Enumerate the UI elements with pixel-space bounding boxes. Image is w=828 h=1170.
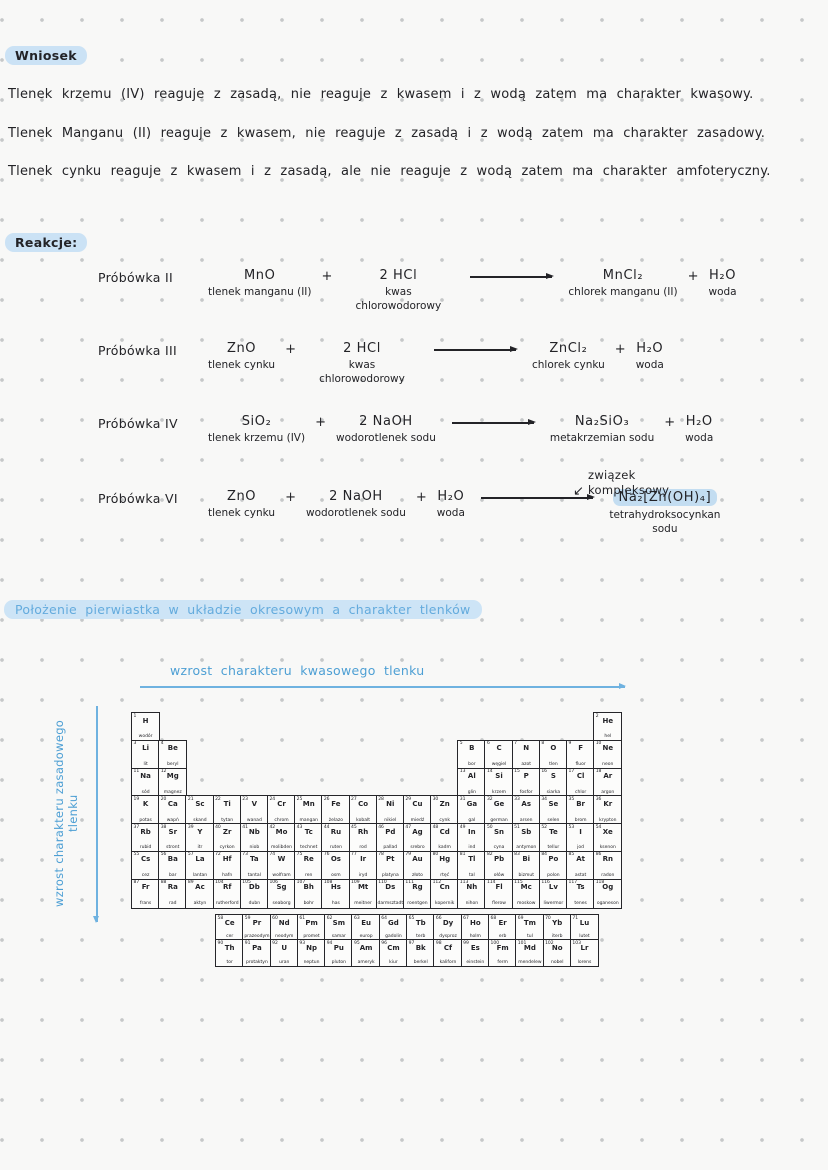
element-symbol: Rb <box>132 828 159 836</box>
element-B: 5Bbor <box>458 741 485 769</box>
element-symbol: Al <box>458 772 485 780</box>
element-Zr: 40Zrcyrkon <box>214 824 241 852</box>
reaction-term: ZnOtlenek cynku <box>208 489 275 521</box>
element-name: cez <box>132 873 159 878</box>
element-Cn: 112Cnkopernik <box>431 880 458 908</box>
element-name: nobel <box>544 960 571 965</box>
element-symbol: Rg <box>404 883 431 891</box>
element-I: 53Ijod <box>567 824 594 852</box>
element-symbol: Pt <box>377 855 404 863</box>
element-Og: 118Ogoganeson <box>594 880 621 908</box>
reaction-arrow <box>452 422 534 424</box>
element-symbol: Tm <box>516 919 543 927</box>
element-name: neon <box>594 762 621 767</box>
element-name: iryd <box>350 873 377 878</box>
element-name: azot <box>513 762 540 767</box>
equation: MnOtlenek manganu (II)+2 HClkwas chlorow… <box>202 268 743 313</box>
element-symbol: Ra <box>159 883 186 891</box>
element-Tl: 81Tltal <box>458 852 485 880</box>
acid-character-arrow-label: wzrost charakteru kwasowego tlenku <box>170 663 425 678</box>
element-Th: 90Thtor <box>216 940 243 966</box>
element-symbol: Rn <box>594 855 621 863</box>
element-name: hafn <box>214 873 241 878</box>
element-name: has <box>322 901 349 906</box>
element-symbol: Sg <box>268 883 295 891</box>
element-Eu: 63Eueurop <box>352 915 379 940</box>
element-name: wodór <box>132 734 159 739</box>
element-Lu: 71Lulutet <box>571 915 598 940</box>
element-symbol: Tb <box>407 919 434 927</box>
element-He: 2Hehel <box>594 713 621 741</box>
element-name: terb <box>407 934 434 939</box>
element-symbol: O <box>540 744 567 752</box>
element-name: mendelew <box>516 960 543 965</box>
element-symbol: Xe <box>594 828 621 836</box>
element-symbol: K <box>132 800 159 808</box>
element-Mt: 109Mtmeitner <box>350 880 377 908</box>
element-Po: 84Popolon <box>540 852 567 880</box>
element-name: cer <box>216 934 243 939</box>
element-Rn: 86Rnradon <box>594 852 621 880</box>
reaction-term: 2 NaOHwodorotlenek sodu <box>336 414 436 446</box>
element-name: żelazo <box>322 818 349 823</box>
element-symbol: Gd <box>380 919 407 927</box>
element-Np: 93Npneptun <box>298 940 325 966</box>
element-symbol: La <box>186 855 213 863</box>
element-Cl: 17Clchlor <box>567 769 594 797</box>
equation: ZnOtlenek cynku+2 HClkwas chlorowodorowy… <box>202 341 670 386</box>
element-symbol: Cu <box>404 800 431 808</box>
lanthanide-actinide-block: 58Cecer59Prprazeodym60Ndneodym61Pmpromet… <box>216 915 598 966</box>
element-Xe: 54Xeksenon <box>594 824 621 852</box>
element-Si: 14Sikrzem <box>485 769 512 797</box>
element-name: radon <box>594 873 621 878</box>
element-name: cynk <box>431 818 458 823</box>
element-name: tul <box>516 934 543 939</box>
element-Zn: 30Zncynk <box>431 796 458 824</box>
element-Hs: 108Hshas <box>322 880 349 908</box>
complex-note-arrow-icon: ↙ <box>573 484 584 499</box>
formula-label: wodorotlenek sodu <box>306 507 406 521</box>
element-La: 57Lalantan <box>186 852 213 880</box>
element-name: tellur <box>540 845 567 850</box>
chemical-formula: ZnO <box>227 341 256 356</box>
element-Fr: 87Frfrans <box>132 880 159 908</box>
element-symbol: Lr <box>571 944 598 952</box>
test-tube-label: Próbówka VI <box>98 491 202 506</box>
element-In: 49Inind <box>458 824 485 852</box>
element-name: neodym <box>271 934 298 939</box>
conclusion-line-1: Tlenek krzemu (IV) reaguje z zasadą, nie… <box>8 87 802 102</box>
element-name: glin <box>458 790 485 795</box>
element-As: 33Asarsen <box>513 796 540 824</box>
element-symbol: Lu <box>571 919 598 927</box>
element-name: protaktyn <box>243 960 270 965</box>
element-name: europ <box>352 934 379 939</box>
element-Be: 4Beberyl <box>159 741 186 769</box>
formula-label: tlenek cynku <box>208 359 275 373</box>
element-name: wolfram <box>268 873 295 878</box>
element-name: ksenon <box>594 845 621 850</box>
element-name: darmsztadt <box>377 901 404 906</box>
element-symbol: Te <box>540 828 567 836</box>
element-Nh: 113Nhnihon <box>458 880 485 908</box>
element-Yb: 70Ybiterb <box>544 915 571 940</box>
element-symbol: Zn <box>431 800 458 808</box>
chemical-formula: 2 HCl <box>379 268 417 283</box>
element-name: rubid <box>132 845 159 850</box>
chemical-formula: ZnO <box>227 489 256 504</box>
element-symbol: Cn <box>431 883 458 891</box>
element-symbol: Er <box>489 919 516 927</box>
element-Ho: 67Hoholm <box>462 915 489 940</box>
element-symbol: Ba <box>159 855 186 863</box>
element-symbol: Rf <box>214 883 241 891</box>
element-Cu: 29Cumiedź <box>404 796 431 824</box>
element-symbol: Ar <box>594 772 621 780</box>
element-symbol: Na <box>132 772 159 780</box>
element-symbol: Nd <box>271 919 298 927</box>
element-Cf: 98Cfkaliforn <box>434 940 461 966</box>
element-name: chlor <box>567 790 594 795</box>
formula-label: woda <box>685 432 713 446</box>
element-symbol: Es <box>462 944 489 952</box>
element-Fm: 100Fmferm <box>489 940 516 966</box>
element-symbol: Se <box>540 800 567 808</box>
element-symbol: Ds <box>377 883 404 891</box>
reaction-term: Na₂SiO₃metakrzemian sodu <box>550 414 654 446</box>
conclusion-line-2: Tlenek Manganu (II) reaguje z kwasem, ni… <box>8 126 802 141</box>
element-name: holm <box>462 934 489 939</box>
element-name: flerow <box>485 901 512 906</box>
element-symbol: Ni <box>377 800 404 808</box>
element-name: osm <box>322 873 349 878</box>
reaction-1: Próbówka IIMnOtlenek manganu (II)+2 HClk… <box>98 268 743 313</box>
element-Cr: 24Crchrom <box>268 796 295 824</box>
element-Co: 27Cokobalt <box>350 796 377 824</box>
element-name: fluor <box>567 762 594 767</box>
element-Li: 3Lilit <box>132 741 159 769</box>
element-Nb: 41Nbniob <box>241 824 268 852</box>
chemical-formula: H₂O <box>636 341 663 356</box>
element-name: tytan <box>214 818 241 823</box>
element-Rg: 111Rgroentgen <box>404 880 431 908</box>
element-name: gal <box>458 818 485 823</box>
element-Y: 39Yitr <box>186 824 213 852</box>
element-name: dysproz <box>434 934 461 939</box>
element-name: kadm <box>431 845 458 850</box>
element-name: rtęć <box>431 873 458 878</box>
reaction-arrow <box>470 276 552 278</box>
complex-note-line1: związek <box>588 468 636 482</box>
element-name: ameryk <box>352 960 379 965</box>
reaction-2: Próbówka IIIZnOtlenek cynku+2 HClkwas ch… <box>98 341 670 386</box>
element-symbol: Pr <box>243 919 270 927</box>
element-symbol: Ir <box>350 855 377 863</box>
element-O: 8Otlen <box>540 741 567 769</box>
chemical-formula: Na₂SiO₃ <box>575 414 629 429</box>
chemical-formula: SiO₂ <box>242 414 272 429</box>
element-symbol: Bi <box>513 855 540 863</box>
acid-character-arrow <box>140 686 625 688</box>
element-symbol: Ca <box>159 800 186 808</box>
element-symbol: Cd <box>431 828 458 836</box>
element-symbol: Sc <box>186 800 213 808</box>
element-symbol: W <box>268 855 295 863</box>
element-symbol: Rh <box>350 828 377 836</box>
element-name: fosfor <box>513 790 540 795</box>
element-name: kaliforn <box>434 960 461 965</box>
element-Ce: 58Cecer <box>216 915 243 940</box>
element-Pa: 91Paprotaktyn <box>243 940 270 966</box>
element-At: 85Atastat <box>567 852 594 880</box>
element-Hg: 80Hgrtęć <box>431 852 458 880</box>
element-Lv: 116Lvliwermor <box>540 880 567 908</box>
element-symbol: Kr <box>594 800 621 808</box>
element-name: rutherford <box>214 901 241 906</box>
element-name: sód <box>132 790 159 795</box>
element-name: krypton <box>594 818 621 823</box>
element-symbol: Sn <box>485 828 512 836</box>
element-symbol: Fm <box>489 944 516 952</box>
element-Lr: 103Lrlorens <box>571 940 598 966</box>
element-name: samar <box>325 934 352 939</box>
element-symbol: U <box>271 944 298 952</box>
element-Ar: 18Arargon <box>594 769 621 797</box>
element-symbol: Y <box>186 828 213 836</box>
element-Fe: 26Feżelazo <box>322 796 349 824</box>
element-name: berkel <box>407 960 434 965</box>
element-symbol: Mn <box>295 800 322 808</box>
element-name: skand <box>186 818 213 823</box>
element-symbol: Hf <box>214 855 241 863</box>
element-symbol: F <box>567 744 594 752</box>
element-Bi: 83Bibizmut <box>513 852 540 880</box>
element-name: bar <box>159 873 186 878</box>
element-symbol: Ge <box>485 800 512 808</box>
element-symbol: Db <box>241 883 268 891</box>
formula-label: tetrahydroksocynkan sodu <box>609 509 721 536</box>
formula-label: wodorotlenek sodu <box>336 432 436 446</box>
element-Se: 34Seselen <box>540 796 567 824</box>
element-symbol: Po <box>540 855 567 863</box>
element-symbol: Fl <box>485 883 512 891</box>
element-symbol: Cr <box>268 800 295 808</box>
element-Os: 76Ososm <box>322 852 349 880</box>
element-symbol: Cs <box>132 855 159 863</box>
element-name: węgiel <box>485 762 512 767</box>
element-name: bohr <box>295 901 322 906</box>
element-Ca: 20Cawapń <box>159 796 186 824</box>
element-name: tal <box>458 873 485 878</box>
element-symbol: P <box>513 772 540 780</box>
element-name: molibden <box>268 845 295 850</box>
element-symbol: Ta <box>241 855 268 863</box>
element-name: ruten <box>322 845 349 850</box>
element-name: einstein <box>462 960 489 965</box>
element-name: kiur <box>380 960 407 965</box>
reaction-arrow <box>434 349 516 351</box>
formula-label: metakrzemian sodu <box>550 432 654 446</box>
element-Ne: 10Neneon <box>594 741 621 769</box>
element-symbol: Fr <box>132 883 159 891</box>
complex-compound-note: związek kompleksowy <box>588 468 669 498</box>
formula-label: woda <box>437 507 465 521</box>
element-name: technet <box>295 845 322 850</box>
element-Md: 101Mdmendelew <box>516 940 543 966</box>
element-Es: 99Eseinstein <box>462 940 489 966</box>
plus-sign: + <box>285 341 296 357</box>
element-name: lorens <box>571 960 598 965</box>
element-symbol: Am <box>352 944 379 952</box>
element-name: srebro <box>404 845 431 850</box>
element-name: aktyn <box>186 901 213 906</box>
element-symbol: Eu <box>352 919 379 927</box>
element-symbol: V <box>241 800 268 808</box>
element-Na: 11Nasód <box>132 769 159 797</box>
reaction-term: 2 NaOHwodorotlenek sodu <box>306 489 406 521</box>
element-Tb: 65Tbterb <box>407 915 434 940</box>
reaction-term: H₂Owoda <box>685 414 713 446</box>
element-Mo: 42Momolibden <box>268 824 295 852</box>
reaction-term: MnCl₂chlorek manganu (II) <box>568 268 677 300</box>
element-symbol: Dy <box>434 919 461 927</box>
element-name: oganeson <box>594 901 621 906</box>
element-Cs: 55Cscez <box>132 852 159 880</box>
element-Sc: 21Scskand <box>186 796 213 824</box>
element-symbol: He <box>594 717 621 725</box>
element-symbol: Co <box>350 800 377 808</box>
element-symbol: In <box>458 828 485 836</box>
element-name: iterb <box>544 934 571 939</box>
element-symbol: Bh <box>295 883 322 891</box>
element-symbol: Np <box>298 944 325 952</box>
element-name: polon <box>540 873 567 878</box>
element-symbol: I <box>567 828 594 836</box>
element-Bk: 97Bkberkel <box>407 940 434 966</box>
element-Ts: 117Tstenes <box>567 880 594 908</box>
element-symbol: Ru <box>322 828 349 836</box>
element-name: stront <box>159 845 186 850</box>
element-symbol: Pm <box>298 919 325 927</box>
element-symbol: Re <box>295 855 322 863</box>
element-Pb: 82Pbołów <box>485 852 512 880</box>
plus-sign: + <box>688 268 699 284</box>
element-Nd: 60Ndneodym <box>271 915 298 940</box>
plus-sign: + <box>416 489 427 505</box>
element-Cm: 96Cmkiur <box>380 940 407 966</box>
element-symbol: No <box>544 944 571 952</box>
element-name: arsen <box>513 818 540 823</box>
reaction-term: 2 HClkwas chlorowodorowy <box>306 341 418 386</box>
element-Dy: 66Dydysproz <box>434 915 461 940</box>
element-symbol: Hs <box>322 883 349 891</box>
element-symbol: At <box>567 855 594 863</box>
element-Pr: 59Prprazeodym <box>243 915 270 940</box>
chemical-formula: MnCl₂ <box>603 268 643 283</box>
element-name: siarka <box>540 790 567 795</box>
element-name: niob <box>241 845 268 850</box>
element-Rf: 104Rfrutherford <box>214 880 241 908</box>
element-Db: 105Dbdubn <box>241 880 268 908</box>
element-name: promet <box>298 934 325 939</box>
element-name: beryl <box>159 762 186 767</box>
element-Ir: 77Iriryd <box>350 852 377 880</box>
element-symbol: Mc <box>513 883 540 891</box>
element-symbol: Ho <box>462 919 489 927</box>
element-symbol: Tc <box>295 828 322 836</box>
element-Cd: 48Cdkadm <box>431 824 458 852</box>
element-No: 102Nonobel <box>544 940 571 966</box>
formula-label: woda <box>636 359 664 373</box>
element-symbol: Zr <box>214 828 241 836</box>
element-Sr: 38Srstront <box>159 824 186 852</box>
element-name: argon <box>594 790 621 795</box>
notebook-page: Wniosek Tlenek krzemu (IV) reaguje z zas… <box>0 0 828 1170</box>
element-Ac: 89Acaktyn <box>186 880 213 908</box>
element-symbol: Lv <box>540 883 567 891</box>
element-Mn: 25Mnmangan <box>295 796 322 824</box>
element-symbol: Cm <box>380 944 407 952</box>
plus-sign: + <box>285 489 296 505</box>
element-C: 6Cwęgiel <box>485 741 512 769</box>
element-name: miedź <box>404 818 431 823</box>
element-symbol: Au <box>404 855 431 863</box>
element-symbol: Mo <box>268 828 295 836</box>
element-name: chrom <box>268 818 295 823</box>
element-symbol: Ag <box>404 828 431 836</box>
element-Br: 35Brbrom <box>567 796 594 824</box>
element-name: prazeodym <box>243 934 270 939</box>
element-Kr: 36Krkrypton <box>594 796 621 824</box>
element-Rh: 45Rhrod <box>350 824 377 852</box>
element-name: lit <box>132 762 159 767</box>
plus-sign: + <box>615 341 626 357</box>
element-name: tor <box>216 960 243 965</box>
element-symbol: Be <box>159 744 186 752</box>
element-Ra: 88Rarad <box>159 880 186 908</box>
element-name: astat <box>567 873 594 878</box>
chemical-formula: 2 NaOH <box>329 489 383 504</box>
element-Ti: 22Titytan <box>214 796 241 824</box>
element-symbol: Ac <box>186 883 213 891</box>
element-Ds: 110Dsdarmsztadt <box>377 880 404 908</box>
element-Au: 79Auzłoto <box>404 852 431 880</box>
element-name: brom <box>567 818 594 823</box>
element-name: jod <box>567 845 594 850</box>
conclusion-line-3: Tlenek cynku reaguje z kwasem i z zasadą… <box>8 164 802 179</box>
reactions-section: Próbówka IIMnOtlenek manganu (II)+2 HClk… <box>98 268 788 588</box>
element-symbol: Li <box>132 744 159 752</box>
element-Ag: 47Agsrebro <box>404 824 431 852</box>
element-symbol: B <box>458 744 485 752</box>
chemical-formula: 2 HCl <box>343 341 381 356</box>
element-Fl: 114Flflerow <box>485 880 512 908</box>
element-Hf: 72Hfhafn <box>214 852 241 880</box>
formula-label: chlorek manganu (II) <box>568 286 677 300</box>
element-name: roentgen <box>404 901 431 906</box>
reaction-term: MnOtlenek manganu (II) <box>208 268 311 300</box>
element-Ge: 32Gegerman <box>485 796 512 824</box>
element-symbol: Pa <box>243 944 270 952</box>
element-symbol: Cl <box>567 772 594 780</box>
reaction-term: H₂Owoda <box>708 268 736 300</box>
element-H: 1Hwodór <box>132 713 159 741</box>
test-tube-label: Próbówka IV <box>98 416 202 431</box>
element-symbol: Mg <box>159 772 186 780</box>
element-name: seaborg <box>268 901 295 906</box>
element-symbol: H <box>132 717 159 725</box>
